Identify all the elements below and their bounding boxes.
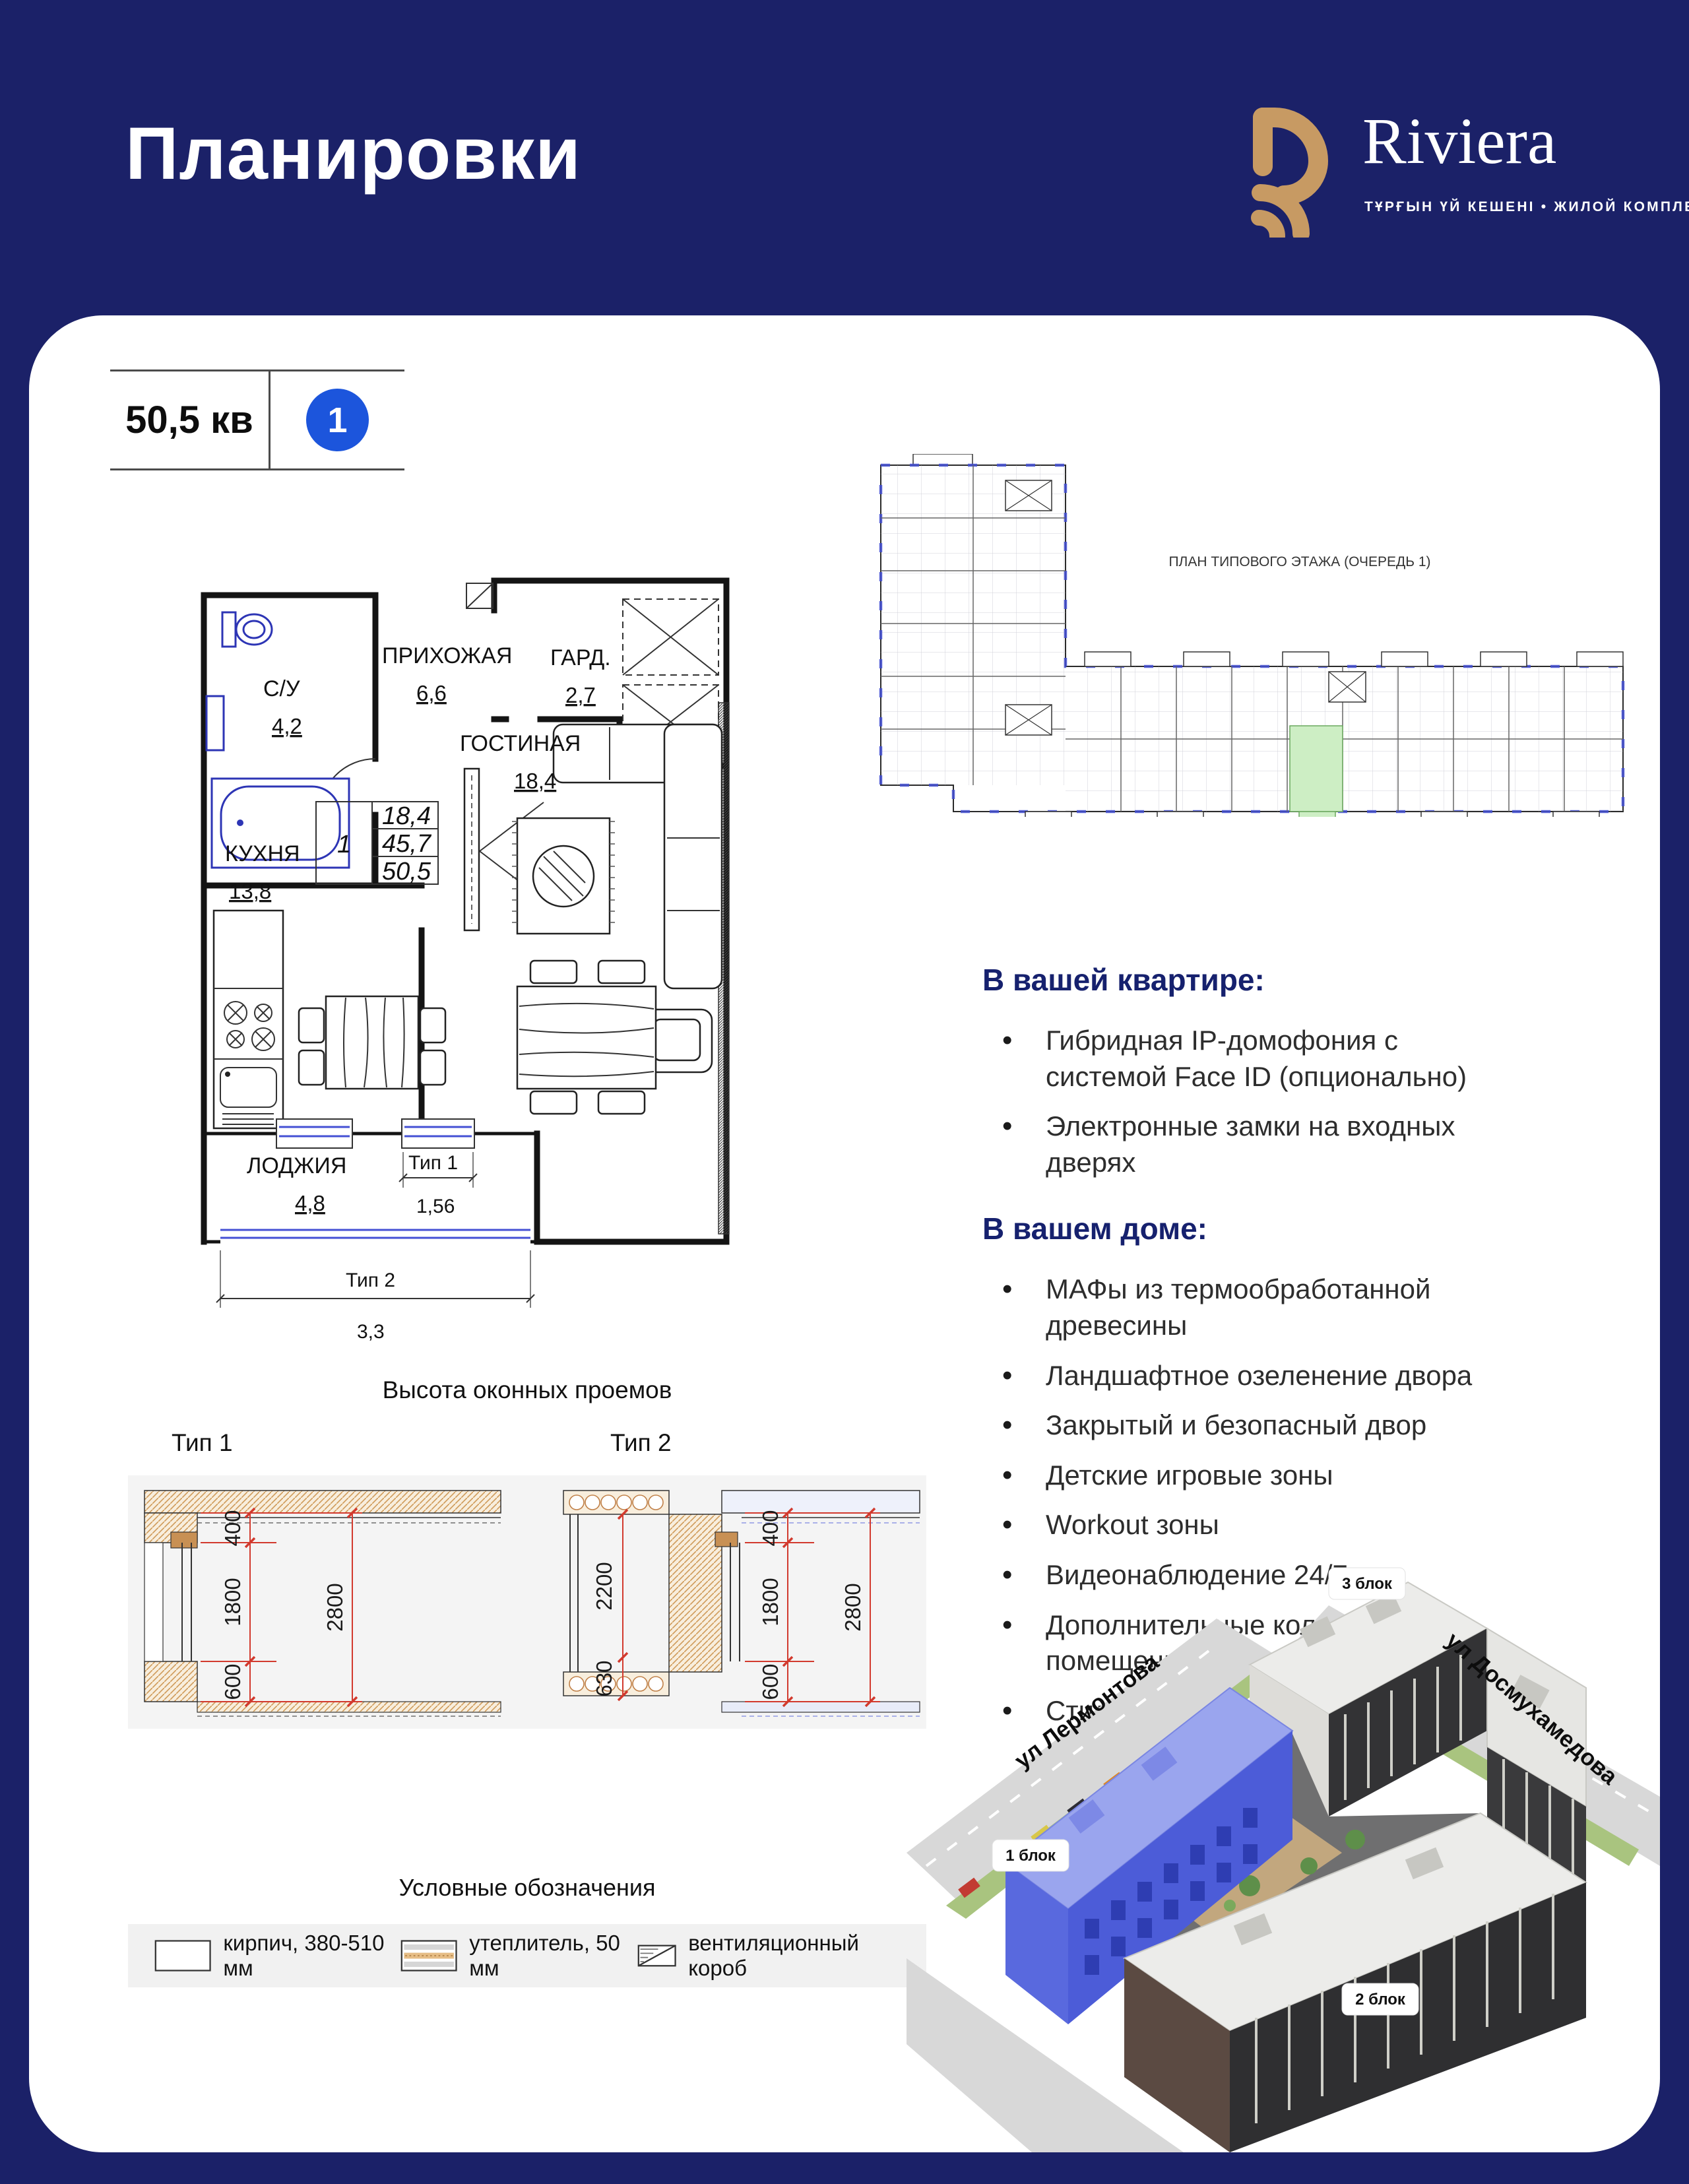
- brick-swatch-icon: [154, 1938, 211, 1974]
- room-label: КУХНЯ: [225, 841, 300, 866]
- list-item: Гибридная IP-домофония с системой Face I…: [982, 1023, 1484, 1095]
- legend-label: утеплитель, 50 мм: [469, 1931, 637, 1981]
- dining-table: [517, 961, 656, 1114]
- brand-tagline: ТҰРҒЫН ҮЙ КЕШЕНІ • ЖИЛОЙ КОМПЛЕКС: [1364, 199, 1689, 215]
- rug-coffee-table: [512, 818, 615, 934]
- loggia-windows: [220, 1119, 530, 1238]
- typical-floor-plan: ПЛАН ТИПОВОГО ЭТАЖА (ОЧЕРЕДЬ 1): [874, 454, 1636, 817]
- living-furniture: [464, 724, 722, 1114]
- brand-logo: Riviera ТҰРҒЫН ҮЙ КЕШЕНІ • ЖИЛОЙ КОМПЛЕК…: [1240, 99, 1610, 251]
- brand-wordmark: Riviera: [1362, 103, 1556, 179]
- dim-630: 630: [592, 1660, 616, 1696]
- stat-sub: 45,7: [382, 830, 432, 858]
- room-area: 4,8: [295, 1191, 325, 1215]
- block2-chip: 2 блок: [1342, 1983, 1418, 2015]
- dim-400: 400: [758, 1510, 782, 1546]
- unit-area-label: 50,5 кв: [110, 371, 271, 468]
- legend: кирпич, 380-510 мм утеплитель, 50 мм вен…: [128, 1924, 926, 1987]
- legend-item-insulation: утеплитель, 50 мм: [400, 1931, 637, 1981]
- dim-600: 600: [220, 1663, 245, 1700]
- legend-title: Условные обозначения: [128, 1874, 926, 1902]
- room-area: 2,7: [565, 683, 596, 707]
- room-label: ЛОДЖИЯ: [247, 1153, 346, 1178]
- window-section-type2: 2200 630 400 1800 600 2800: [554, 1474, 930, 1729]
- win-type1-width: 1,56: [416, 1196, 455, 1217]
- list-item: Детские игровые зоны: [982, 1458, 1484, 1494]
- bathroom-fixtures: [207, 612, 349, 868]
- list-item: МАФы из термообработанной древесины: [982, 1271, 1484, 1343]
- legend-label: кирпич, 380-510 мм: [223, 1931, 400, 1981]
- insulation-swatch-icon: [400, 1938, 457, 1974]
- block3-chip: 3 блок: [1329, 1568, 1405, 1599]
- site-render: ул Лермонтова ул Досмухамедова 3 блок 1 …: [907, 1496, 1660, 2152]
- apartment-features-list: Гибридная IP-домофония с системой Face I…: [982, 1023, 1484, 1180]
- win-type1-label: Тип 1: [408, 1152, 458, 1174]
- room-label: С/У: [263, 676, 300, 701]
- house-features-heading: В вашем доме:: [982, 1211, 1649, 1246]
- stat-living: 18,4: [382, 802, 431, 830]
- site-plan-caption: ПЛАН ТИПОВОГО ЭТАЖА (ОЧЕРЕДЬ 1): [1168, 554, 1430, 569]
- vent-duct-swatch-icon: [637, 1942, 676, 1970]
- unit-number-badge: 1: [306, 389, 369, 451]
- kitchen-table: [299, 996, 445, 1089]
- kitchen-counter: [214, 911, 283, 1128]
- block1-chip: 1 блок: [992, 1840, 1069, 1871]
- legend-item-vent: вентиляционный короб: [637, 1931, 900, 1981]
- room-area: 6,6: [416, 681, 447, 705]
- list-item: Ландшафтное озеленение двора: [982, 1358, 1484, 1394]
- site-plan-building: [881, 454, 1623, 817]
- dim-600: 600: [758, 1663, 782, 1700]
- section-dimensions: 400 1800 600 2800: [201, 1508, 362, 1706]
- apartment-features-heading: В вашей квартире:: [982, 962, 1649, 998]
- dim-1800: 1800: [758, 1578, 782, 1626]
- unit-area-table: 50,5 кв 1: [110, 369, 404, 470]
- list-item: Электронные замки на входных дверях: [982, 1108, 1484, 1180]
- legend-item-brick: кирпич, 380-510 мм: [154, 1931, 400, 1981]
- window-section-type1: 400 1800 600 2800: [135, 1474, 511, 1729]
- page-title: Планировки: [125, 111, 581, 196]
- dim-400: 400: [220, 1510, 245, 1546]
- stat-rooms: 1: [337, 831, 351, 858]
- dim-2200: 2200: [592, 1562, 616, 1610]
- legend-label: вентиляционный короб: [688, 1931, 900, 1981]
- svg-text:2 блок: 2 блок: [1355, 1991, 1406, 2008]
- brand-logo-icon: [1240, 106, 1349, 238]
- apartment-floor-plan: С/У 4,2 ПРИХОЖАЯ 6,6 ГАРД. 2,7 ГОСТИНАЯ …: [184, 561, 732, 1359]
- window-heights-title: Высота оконных проемов: [128, 1376, 926, 1404]
- plan-window-dims: Тип 1 1,56 Тип 2 3,3: [216, 1152, 534, 1343]
- window-type1-label: Тип 1: [172, 1429, 233, 1457]
- room-label: ПРИХОЖАЯ: [382, 643, 512, 668]
- room-label: ГАРД.: [550, 645, 611, 670]
- section-structure: [563, 1491, 920, 1716]
- room-area: 18,4: [514, 769, 556, 793]
- dim-1800: 1800: [220, 1578, 245, 1626]
- room-area: 13,8: [229, 879, 271, 903]
- page: { "header": { "title": "Планировки", "br…: [0, 0, 1689, 2184]
- win-type2-label: Тип 2: [346, 1269, 395, 1291]
- stat-total: 50,5: [382, 858, 431, 885]
- highlighted-unit: [1290, 726, 1343, 817]
- dim-2800: 2800: [323, 1583, 347, 1631]
- unit-number-cell: 1: [271, 371, 404, 468]
- win-type2-width: 3,3: [357, 1321, 385, 1343]
- room-area: 4,2: [272, 714, 302, 738]
- dim-2800: 2800: [841, 1583, 865, 1631]
- room-label: ГОСТИНАЯ: [460, 731, 581, 756]
- svg-text:3 блок: 3 блок: [1342, 1575, 1393, 1593]
- content-card: 50,5 кв 1: [29, 315, 1660, 2152]
- svg-text:1 блок: 1 блок: [1005, 1847, 1056, 1865]
- list-item: Закрытый и безопасный двор: [982, 1407, 1484, 1444]
- window-type2-label: Тип 2: [610, 1429, 672, 1457]
